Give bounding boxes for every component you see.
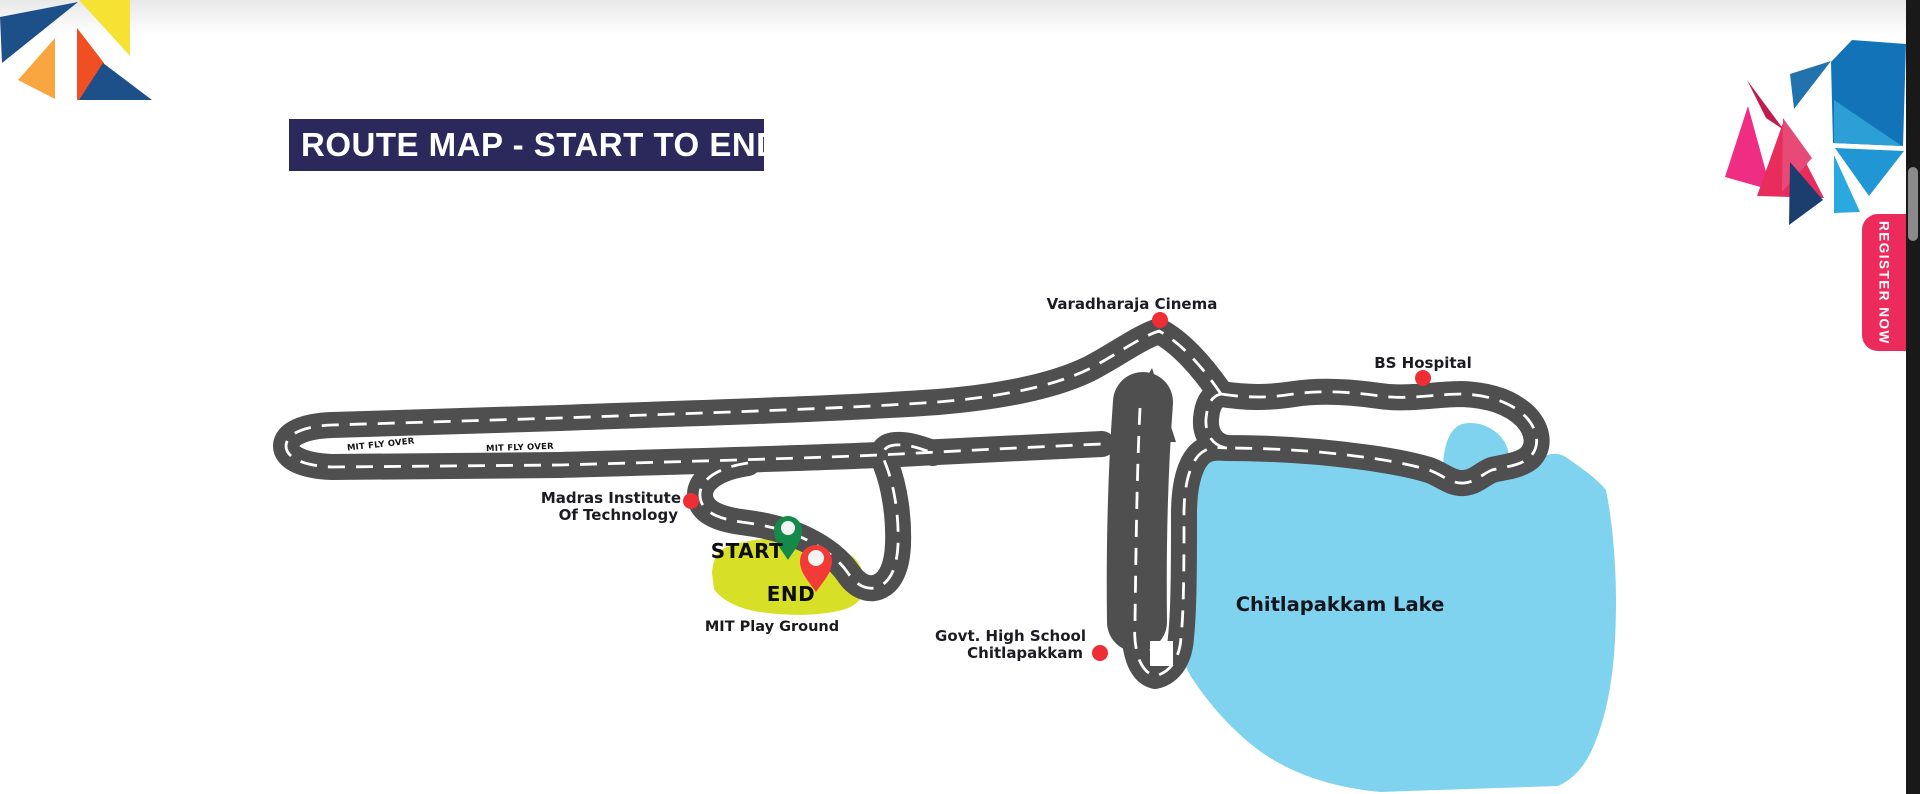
school-label-line1: Govt. High School [935, 627, 1086, 645]
lake-label: Chitlapakkam Lake [1236, 593, 1445, 616]
road-notch [1150, 641, 1173, 666]
page: ROUTE MAP - START TO END Vara [0, 0, 1920, 794]
hospital-label: BS Hospital [1374, 354, 1472, 372]
scrollbar-track[interactable] [1906, 0, 1920, 794]
road-flyover-loop [286, 331, 1221, 467]
scrollbar-thumb[interactable] [1908, 167, 1918, 241]
school-label-line2: Chitlapakkam [967, 644, 1083, 662]
hospital-dot [1415, 370, 1431, 386]
institute-label-line2: Of Technology [559, 506, 679, 524]
start-pin-center [781, 521, 795, 535]
school-dot [1092, 645, 1108, 661]
end-pin-center [808, 550, 824, 566]
brand-logo-right [1718, 35, 1908, 230]
cinema-dot [1152, 312, 1168, 328]
route-map: Varadharaja Cinema BS Hospital Madras In… [0, 0, 1920, 794]
end-label: END [767, 582, 816, 606]
register-now-button[interactable]: REGISTER NOW [1862, 214, 1906, 351]
flyover-label-1: MIT FLY OVER [347, 436, 416, 453]
playground-label: MIT Play Ground [705, 619, 839, 635]
institute-label-line1: Madras Institute [541, 489, 681, 507]
institute-dot [683, 493, 699, 509]
logo2-sliver-crimson [1747, 80, 1784, 130]
cinema-label: Varadharaja Cinema [1047, 295, 1218, 313]
start-label: START [711, 539, 784, 563]
register-now-label: REGISTER NOW [1877, 221, 1892, 345]
logo2-triangle-steelblue [1790, 61, 1831, 109]
